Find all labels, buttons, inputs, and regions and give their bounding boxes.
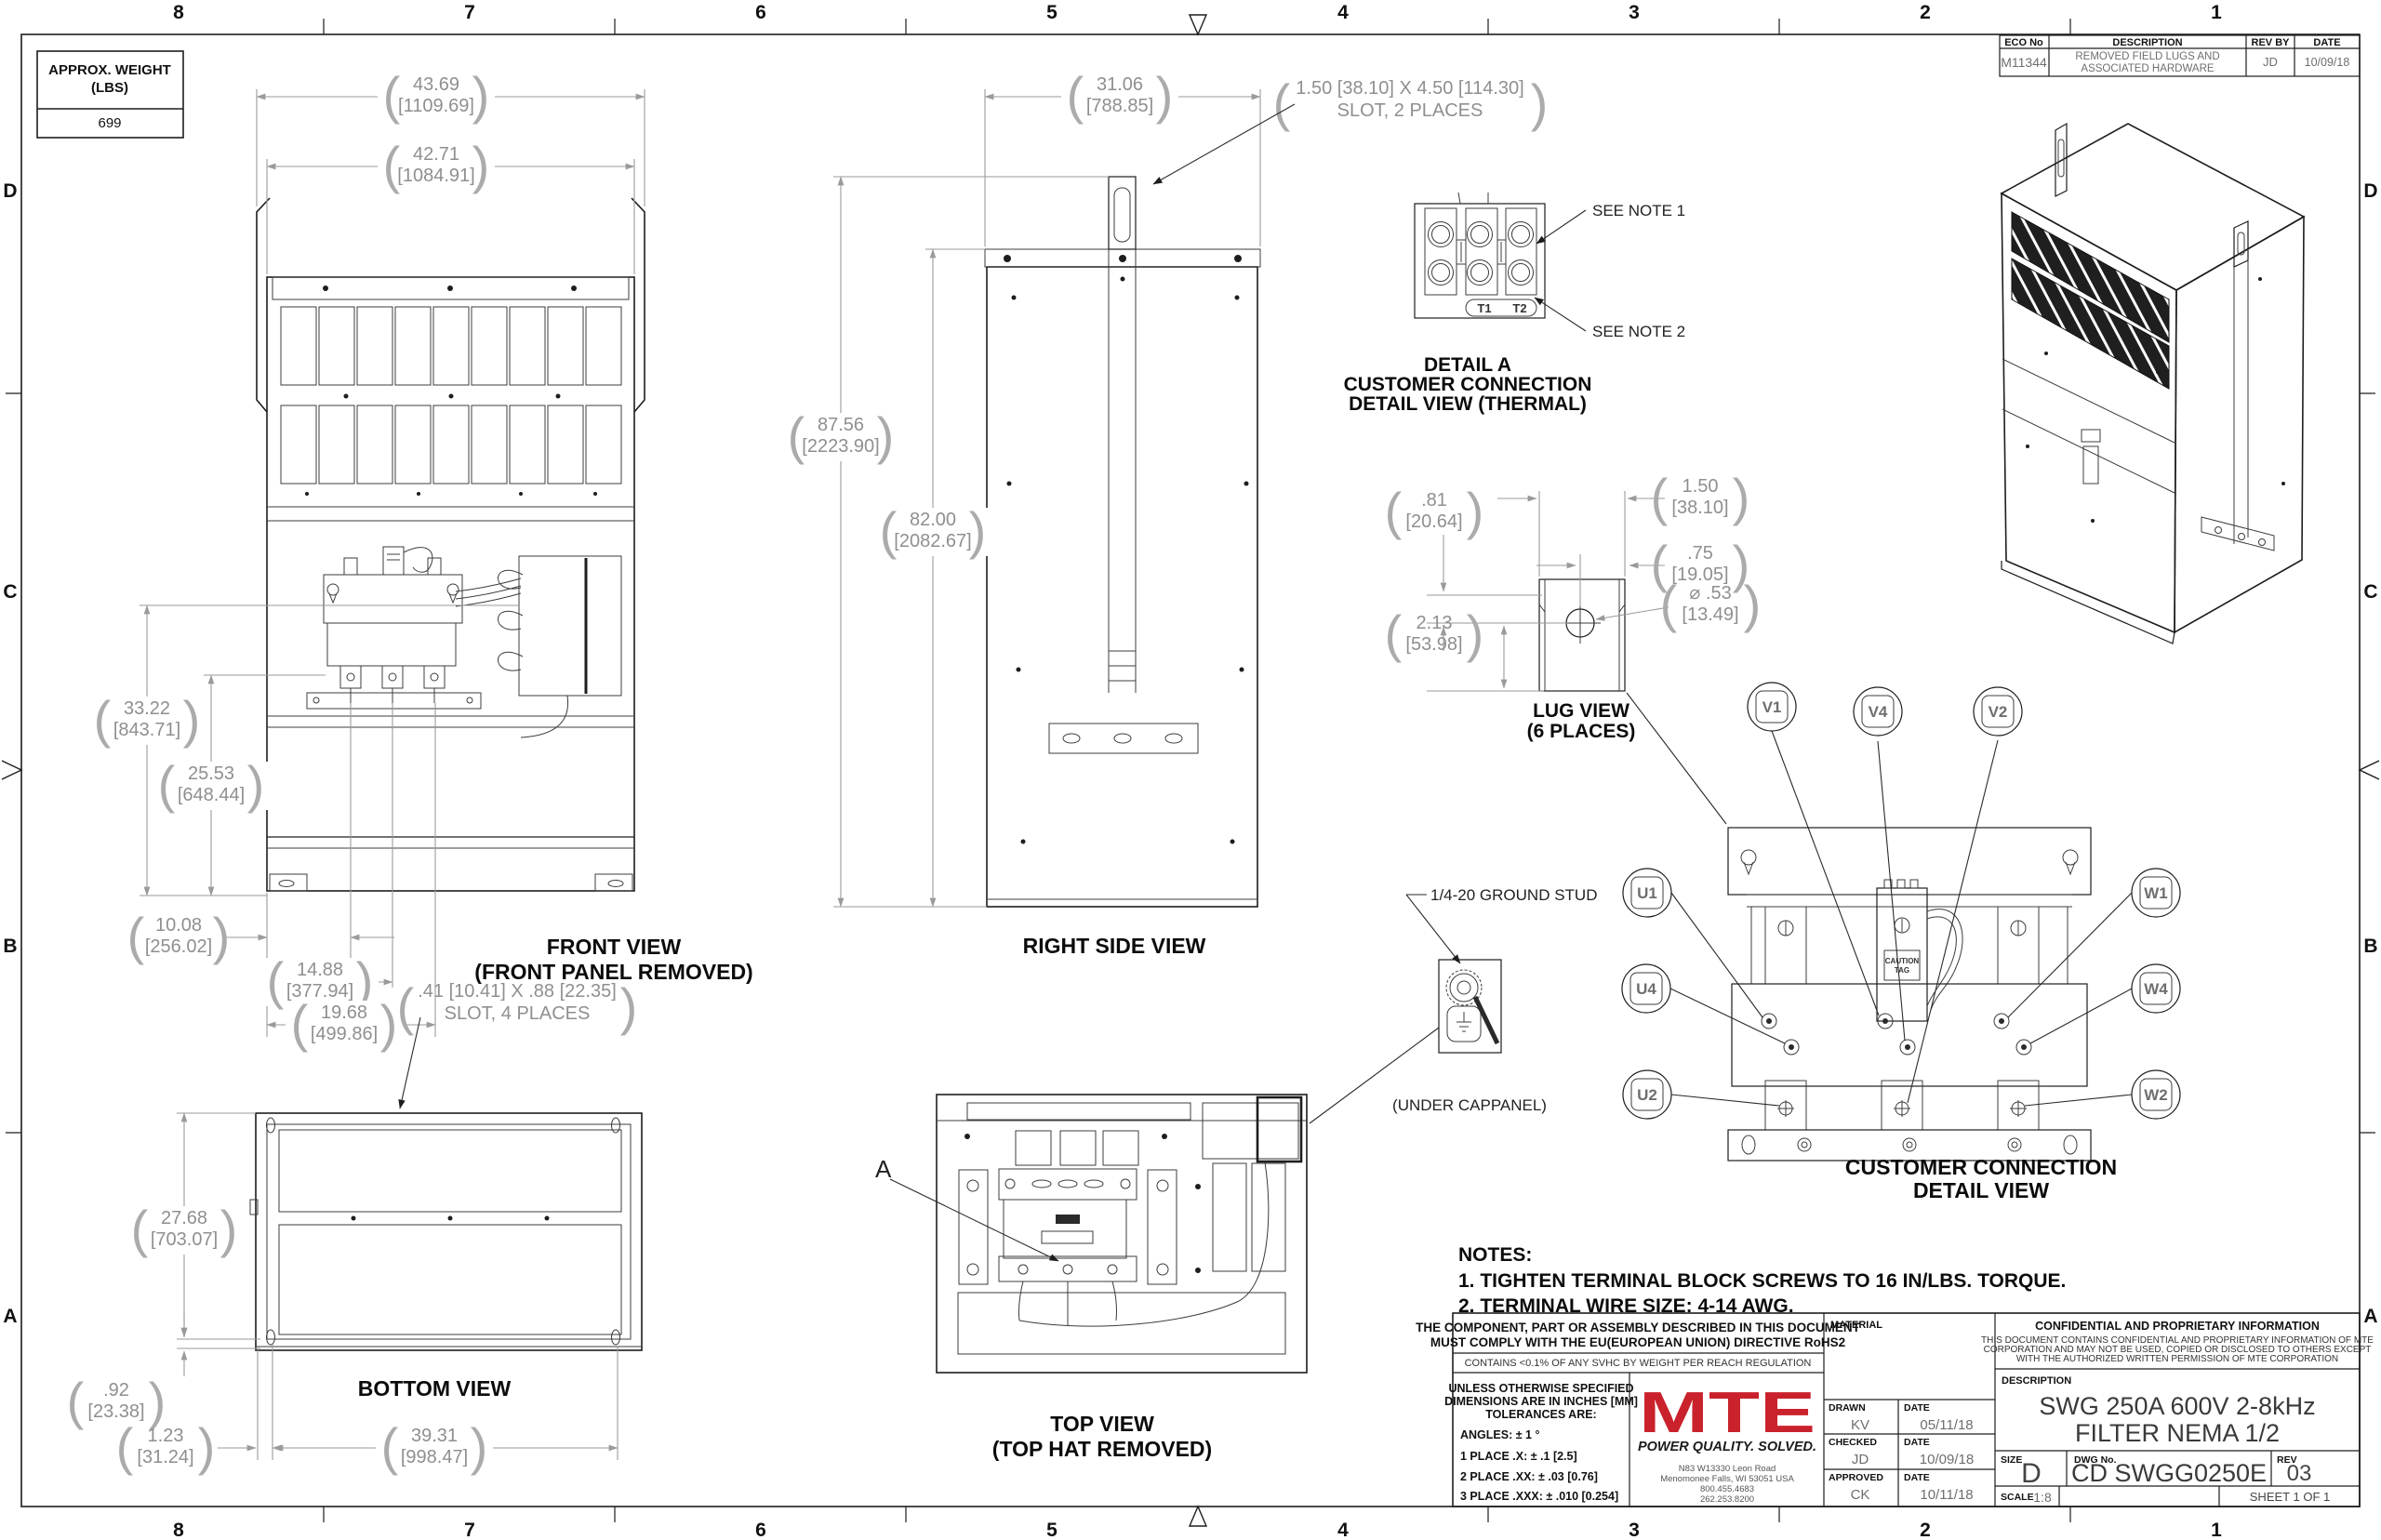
svg-text:V2: V2 bbox=[1989, 703, 2008, 721]
svg-text:): ) bbox=[1156, 66, 1174, 125]
svg-text:): ) bbox=[183, 690, 201, 749]
top-view-caption-2: (TOP HAT REMOVED) bbox=[992, 1437, 1212, 1461]
approved-value: CK bbox=[1851, 1487, 1870, 1503]
scale-label: SCALE bbox=[2001, 1492, 2034, 1503]
dim-right-h-overall-mm: [2223.90] bbox=[802, 436, 879, 457]
zone-row: C bbox=[3, 581, 17, 603]
svg-text:U1: U1 bbox=[1637, 884, 1657, 902]
eco-table: ECO No DESCRIPTION REV BY DATE M11344 RE… bbox=[2000, 35, 2360, 76]
detail-a-caption-1: DETAIL A bbox=[1424, 354, 1511, 376]
eco-date: 10/09/18 bbox=[2305, 56, 2350, 69]
right-side-view-dimensions: () 31.06 [788.85] () 87.56 [2223.90] () … bbox=[782, 66, 1260, 907]
dim-lug-81-mm: [20.64] bbox=[1405, 511, 1462, 532]
dim-lug-dia-in: ⌀ .53 bbox=[1689, 583, 1731, 604]
svg-text:(: ( bbox=[158, 755, 176, 814]
svg-text:): ) bbox=[620, 977, 638, 1036]
detail-a-note2: SEE NOTE 2 bbox=[1592, 323, 1685, 340]
svg-text:(: ( bbox=[1067, 66, 1084, 125]
zone-col: 4 bbox=[1337, 2, 1349, 23]
tolerance-2place: 2 PLACE .XX: ± .03 [0.76] bbox=[1460, 1470, 1598, 1483]
drawn-value: KV bbox=[1851, 1417, 1869, 1433]
sheet-value: SHEET 1 OF 1 bbox=[2250, 1490, 2330, 1504]
svg-text:): ) bbox=[1744, 575, 1762, 633]
dim-front-x1-in: 10.08 bbox=[155, 915, 202, 936]
front-view-dimensions: () 43.69 [1109.69] () 42.71 [1084.91] ()… bbox=[88, 66, 645, 1053]
zone-col: 2 bbox=[1920, 2, 1931, 23]
tolerance-1place: 1 PLACE .X: ± .1 [2.5] bbox=[1460, 1450, 1577, 1463]
svg-text:): ) bbox=[472, 66, 490, 125]
size-label: SIZE bbox=[2001, 1454, 2022, 1466]
svg-text:(: ( bbox=[131, 1200, 149, 1258]
connection-caption-1: CUSTOMER CONNECTION bbox=[1845, 1155, 2117, 1179]
confidential-line-3: WITH THE AUTHORIZED WRITTEN PERMISSION O… bbox=[2016, 1354, 2338, 1364]
svg-text:): ) bbox=[198, 1417, 216, 1476]
svg-text:(: ( bbox=[1660, 575, 1678, 633]
dim-bottom-o2-mm: [31.24] bbox=[137, 1447, 193, 1467]
dim-front-h-mid-in: 25.53 bbox=[188, 763, 234, 784]
tolerance-header-1: UNLESS OTHERWISE SPECIFIED bbox=[1448, 1382, 1633, 1395]
detail-a-caption-3: DETAIL VIEW (THERMAL) bbox=[1349, 393, 1587, 415]
tolerance-header-2: DIMENSIONS ARE IN INCHES [MM] bbox=[1444, 1395, 1638, 1408]
svg-text:): ) bbox=[220, 1200, 238, 1258]
zone-row: D bbox=[2363, 180, 2377, 202]
zone-col: 6 bbox=[755, 2, 766, 23]
dim-lug-150-mm: [38.10] bbox=[1671, 498, 1728, 518]
svg-text:U2: U2 bbox=[1637, 1086, 1657, 1104]
eco-header-date: DATE bbox=[2313, 37, 2340, 48]
detail-a-t2: T2 bbox=[1512, 301, 1526, 315]
drawn-label: DRAWN bbox=[1829, 1402, 1866, 1414]
dim-front-h-mount-in: 33.22 bbox=[124, 698, 170, 719]
description-line-2: FILTER NEMA 1/2 bbox=[2075, 1419, 2280, 1447]
ground-stud-label: 1/4-20 GROUND STUD bbox=[1430, 886, 1597, 904]
zone-row: B bbox=[3, 936, 17, 957]
description-line-1: SWG 250A 600V 2-8kHz bbox=[2039, 1392, 2315, 1420]
checked-label: CHECKED bbox=[1829, 1437, 1877, 1448]
front-view-drawing bbox=[257, 198, 645, 891]
mte-logo: MTE POWER QUALITY. SOLVED. N83 W13330 Le… bbox=[1638, 1381, 1816, 1505]
front-slot-callout: () .41 [10.41] X .88 [22.35] SLOT, 4 PLA… bbox=[397, 977, 638, 1109]
front-reactor-assembly bbox=[307, 547, 481, 709]
eco-desc-2: ASSOCIATED HARDWARE bbox=[2081, 63, 2214, 74]
right-side-caption: RIGHT SIDE VIEW bbox=[1023, 934, 1206, 958]
detail-a-t1: T1 bbox=[1477, 301, 1491, 315]
svg-text:(: ( bbox=[291, 994, 309, 1053]
front-slot-note-1: .41 [10.41] X .88 [22.35] bbox=[418, 981, 617, 1002]
dim-right-h-body-mm: [2082.67] bbox=[894, 531, 971, 551]
zone-col: 8 bbox=[173, 2, 184, 23]
dim-bottom-w-in: 39.31 bbox=[411, 1426, 458, 1446]
dim-right-h-overall-in: 87.56 bbox=[818, 415, 864, 435]
svg-text:U4: U4 bbox=[1636, 980, 1656, 998]
zone-col: 2 bbox=[1920, 1520, 1931, 1540]
zone-col: 5 bbox=[1046, 2, 1057, 23]
zone-row: C bbox=[2363, 581, 2377, 603]
balloon-w2: W2 bbox=[2132, 1070, 2180, 1119]
connection-terminals bbox=[1762, 1014, 2031, 1055]
dim-lug-150-in: 1.50 bbox=[1683, 476, 1719, 497]
dwg-no-value: CD SWGG0250E bbox=[2071, 1459, 2267, 1487]
dim-lug-213-mm: [53.98] bbox=[1405, 634, 1462, 655]
ground-stud-detail: 1/4-20 GROUND STUD (UNDER CAPPANEL) bbox=[1310, 886, 1597, 1123]
notes-title: NOTES: bbox=[1458, 1244, 1532, 1266]
balloon-v4: V4 bbox=[1854, 687, 1902, 736]
dim-bottom-h-mm: [703.07] bbox=[151, 1229, 218, 1250]
front-slot-note-2: SLOT, 4 PLACES bbox=[445, 1003, 591, 1024]
svg-text:W2: W2 bbox=[2144, 1086, 2168, 1104]
drawing-canvas: 8 7 6 5 4 3 2 1 8 7 6 5 4 3 2 1 D C B A … bbox=[0, 0, 2381, 1540]
dim-front-overall-width-mm: [1109.69] bbox=[398, 96, 474, 116]
approved-label: APPROVED bbox=[1829, 1472, 1883, 1483]
svg-text:(: ( bbox=[1273, 73, 1291, 132]
approved-date-label: DATE bbox=[1904, 1472, 1930, 1483]
svg-text:(: ( bbox=[127, 907, 145, 965]
dim-front-body-width-in: 42.71 bbox=[413, 144, 459, 165]
drawing-sheet: 8 7 6 5 4 3 2 1 8 7 6 5 4 3 2 1 D C B A … bbox=[0, 0, 2381, 1540]
checked-value: JD bbox=[1852, 1452, 1869, 1467]
svg-text:(: ( bbox=[1385, 604, 1403, 663]
eco-no: M11344 bbox=[2001, 55, 2047, 70]
dim-bottom-w-mm: [998.47] bbox=[401, 1447, 468, 1467]
svg-text:): ) bbox=[247, 755, 265, 814]
dim-front-x3-mm: [499.86] bbox=[311, 1024, 378, 1044]
mte-logo-text: MTE bbox=[1639, 1381, 1816, 1445]
approved-date-value: 10/11/18 bbox=[1920, 1487, 1973, 1503]
caution-tag-2: TAG bbox=[1895, 966, 1909, 975]
dim-lug-75-in: .75 bbox=[1687, 543, 1713, 564]
bottom-view-drawing bbox=[250, 1113, 642, 1350]
reach-line: CONTAINS <0.1% OF ANY SVHC BY WEIGHT PER… bbox=[1465, 1358, 1812, 1369]
isometric-view-drawing bbox=[2002, 124, 2304, 644]
svg-text:): ) bbox=[380, 994, 398, 1053]
balloon-u4: U4 bbox=[1622, 964, 1670, 1013]
svg-text:): ) bbox=[1467, 482, 1484, 540]
mte-addr-2: Menomonee Falls, WI 53051 USA bbox=[1660, 1474, 1794, 1484]
svg-text:(: ( bbox=[381, 1417, 399, 1476]
scale-value: 1:8 bbox=[2033, 1490, 2052, 1505]
svg-text:): ) bbox=[471, 1417, 488, 1476]
zone-row: A bbox=[2363, 1306, 2377, 1327]
drawn-date-label: DATE bbox=[1904, 1402, 1930, 1414]
zone-col: 7 bbox=[464, 2, 475, 23]
eco-desc-1: REMOVED FIELD LUGS AND bbox=[2075, 51, 2219, 62]
svg-text:V1: V1 bbox=[1762, 698, 1782, 716]
svg-text:): ) bbox=[1467, 604, 1484, 663]
note-1: 1. TIGHTEN TERMINAL BLOCK SCREWS TO 16 I… bbox=[1458, 1270, 2066, 1292]
zone-col: 8 bbox=[173, 1520, 184, 1540]
lug-view-caption-1: LUG VIEW bbox=[1533, 700, 1629, 722]
front-view-caption: FRONT VIEW (FRONT PANEL REMOVED) bbox=[474, 935, 752, 984]
dim-front-overall-width-in: 43.69 bbox=[413, 74, 459, 95]
detail-a-terminals bbox=[1429, 222, 1534, 285]
svg-text:(: ( bbox=[1385, 482, 1403, 540]
drawn-date-value: 05/11/18 bbox=[1920, 1417, 1973, 1433]
thermal-switch: CAUTION TAG bbox=[1877, 880, 1962, 1021]
compliance-line-2: MUST COMPLY WITH THE EU(EUROPEAN UNION) … bbox=[1430, 1335, 1845, 1349]
rev-value: 03 bbox=[2287, 1461, 2312, 1486]
top-view-drawing: A bbox=[875, 1095, 1307, 1373]
material-label: MATERIAL bbox=[1830, 1320, 1882, 1331]
dim-front-x1-mm: [256.02] bbox=[145, 936, 212, 957]
right-slot-note-1: 1.50 [38.10] X 4.50 [114.30] bbox=[1296, 78, 1523, 99]
balloon-v2: V2 bbox=[1974, 687, 2022, 736]
dim-lug-81-in: .81 bbox=[1421, 490, 1447, 511]
svg-text:(: ( bbox=[397, 977, 415, 1036]
front-grille-band-2 bbox=[281, 405, 621, 484]
detail-a-note1: SEE NOTE 1 bbox=[1592, 202, 1685, 219]
dim-front-h-mount-mm: [843.71] bbox=[113, 720, 180, 740]
detail-a-drawing: T1 T2 SEE NOTE 1 SEE NOTE 2 DETAIL A CUS… bbox=[1344, 192, 1686, 415]
dim-bottom-h-in: 27.68 bbox=[161, 1208, 207, 1228]
top-view-detail-label: A bbox=[875, 1155, 892, 1183]
svg-text:(: ( bbox=[94, 690, 112, 749]
notes-block: NOTES: 1. TIGHTEN TERMINAL BLOCK SCREWS … bbox=[1458, 1244, 2066, 1317]
compliance-line-1: THE COMPONENT, PART OR ASSEMBLY DESCRIBE… bbox=[1416, 1321, 1861, 1334]
title-block: THE COMPONENT, PART OR ASSEMBLY DESCRIBE… bbox=[1416, 1313, 2374, 1507]
zone-col: 5 bbox=[1046, 1520, 1057, 1540]
checked-date-label: DATE bbox=[1904, 1437, 1930, 1448]
tolerance-3place: 3 PLACE .XXX: ± .010 [0.254] bbox=[1460, 1490, 1618, 1503]
dim-front-body-width-mm: [1084.91] bbox=[397, 166, 474, 186]
weight-title: APPROX. WEIGHT bbox=[48, 62, 171, 78]
weight-value: 699 bbox=[98, 115, 121, 131]
description-label: DESCRIPTION bbox=[2002, 1375, 2071, 1387]
svg-text:(: ( bbox=[67, 1372, 85, 1430]
mte-addr-1: N83 W13330 Leon Road bbox=[1679, 1464, 1776, 1474]
dim-front-x2-in: 14.88 bbox=[297, 960, 343, 980]
connection-balloons: V1 V4 V2 U1 U4 U2 W1 W4 W2 bbox=[1622, 683, 2180, 1119]
dim-right-h-body-in: 82.00 bbox=[910, 510, 956, 530]
right-slot-callout: () 1.50 [38.10] X 4.50 [114.30] SLOT, 2 … bbox=[1153, 73, 1548, 184]
mte-addr-4: 262.253.8200 bbox=[1700, 1494, 1754, 1505]
mte-tagline: POWER QUALITY. SOLVED. bbox=[1638, 1440, 1816, 1454]
svg-text:): ) bbox=[1733, 468, 1750, 526]
zone-col: 1 bbox=[2211, 2, 2222, 23]
size-value: D bbox=[2021, 1458, 2042, 1489]
balloon-v1: V1 bbox=[1748, 683, 1796, 731]
balloon-w4: W4 bbox=[2132, 964, 2180, 1013]
balloon-w1: W1 bbox=[2132, 869, 2180, 917]
right-slot-note-2: SLOT, 2 PLACES bbox=[1337, 100, 1483, 121]
svg-text:W4: W4 bbox=[2144, 980, 2168, 998]
svg-text:(: ( bbox=[1651, 468, 1669, 526]
balloon-u1: U1 bbox=[1623, 869, 1671, 917]
caution-tag-1: CAUTION bbox=[1885, 957, 1920, 965]
eco-header-no: ECO No bbox=[2004, 37, 2043, 48]
top-view-caption-1: TO​P VIEW bbox=[1050, 1412, 1154, 1436]
svg-text:): ) bbox=[213, 907, 231, 965]
svg-text:): ) bbox=[149, 1372, 166, 1430]
bottom-view-caption: BOTTOM VIEW bbox=[358, 1376, 512, 1401]
checked-date-value: 10/09/18 bbox=[1920, 1452, 1974, 1467]
svg-text:(: ( bbox=[267, 951, 285, 1010]
balloon-u2: U2 bbox=[1623, 1070, 1671, 1119]
svg-text:(: ( bbox=[116, 1417, 134, 1476]
connection-view-drawing: CAUTION TAG bbox=[1728, 828, 2091, 1161]
eco-header-desc: DESCRIPTION bbox=[2112, 37, 2182, 48]
dim-right-width-in: 31.06 bbox=[1097, 74, 1143, 95]
dim-bottom-o1-in: .92 bbox=[103, 1380, 129, 1401]
zone-col: 7 bbox=[464, 1520, 475, 1540]
zone-row: D bbox=[3, 180, 17, 202]
right-side-view-drawing bbox=[985, 177, 1260, 907]
detail-a-caption-2: CUSTOMER CONNECTION bbox=[1344, 374, 1592, 395]
front-capacitor-bank bbox=[456, 556, 621, 737]
zone-row: A bbox=[3, 1306, 17, 1327]
connection-caption-2: DETAIL VIEW bbox=[1913, 1178, 2049, 1202]
dim-front-h-mid-mm: [648.44] bbox=[178, 785, 245, 805]
dim-lug-75-mm: [19.05] bbox=[1671, 564, 1728, 585]
zone-col: 4 bbox=[1337, 1520, 1349, 1540]
zone-row: B bbox=[2363, 936, 2377, 957]
dim-lug-213-in: 2.13 bbox=[1417, 613, 1453, 633]
tolerance-angles: ANGLES: ± 1 ° bbox=[1460, 1428, 1539, 1441]
zone-col: 6 bbox=[755, 1520, 766, 1540]
zone-col: 1 bbox=[2211, 1520, 2222, 1540]
zone-col: 3 bbox=[1629, 2, 1640, 23]
ground-stud-sub: (UNDER CAPPANEL) bbox=[1392, 1096, 1547, 1114]
lug-view-caption-2: (6 PLACES) bbox=[1527, 721, 1636, 742]
zone-col: 3 bbox=[1629, 1520, 1640, 1540]
eco-header-rev: REV BY bbox=[2252, 37, 2291, 48]
svg-text:W1: W1 bbox=[2144, 884, 2168, 902]
dim-front-x3-in: 19.68 bbox=[321, 1002, 367, 1023]
weight-box: APPROX. WEIGHT (LBS) 699 bbox=[37, 51, 183, 138]
confidential-title: CONFIDENTIAL AND PROPRIETARY INFORMATION bbox=[2035, 1320, 2320, 1333]
front-grille-band-1 bbox=[281, 307, 621, 385]
dim-lug-dia-mm: [13.49] bbox=[1682, 604, 1738, 625]
dim-bottom-o2-in: 1.23 bbox=[148, 1426, 184, 1446]
svg-text:V4: V4 bbox=[1869, 703, 1888, 721]
mte-addr-3: 800.455.4683 bbox=[1700, 1484, 1754, 1494]
dim-right-width-mm: [788.85] bbox=[1086, 96, 1153, 116]
tolerance-header-3: TOLERANCES ARE: bbox=[1485, 1408, 1596, 1421]
front-caption-1: FRONT VIEW bbox=[547, 935, 682, 959]
eco-rev-by: JD bbox=[2263, 55, 2278, 69]
bottom-view-dimensions: () 27.68 [703.07] () .92 [23.38] () 1.23… bbox=[67, 1113, 618, 1476]
weight-unit: (LBS) bbox=[91, 80, 128, 96]
svg-text:): ) bbox=[1531, 73, 1549, 132]
